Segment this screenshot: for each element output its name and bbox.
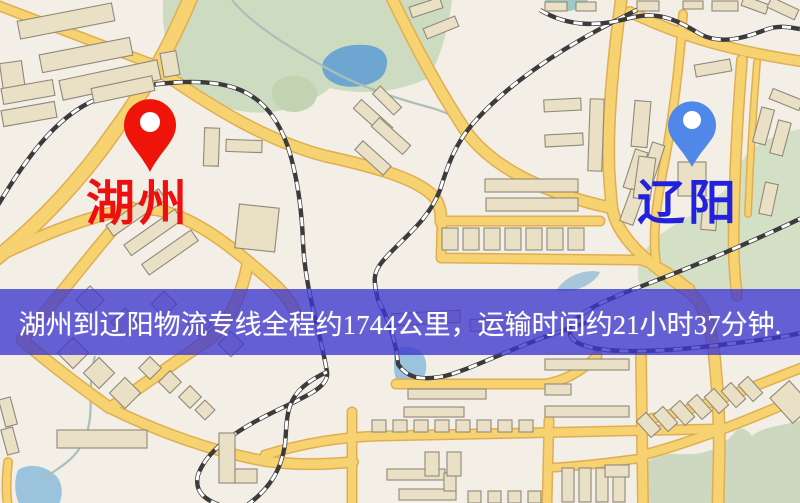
building bbox=[484, 228, 500, 250]
building bbox=[528, 491, 541, 503]
building bbox=[408, 389, 486, 399]
route-info-banner: 湖州到辽阳物流专线全程约1744公里，运输时间约21小时37分钟. bbox=[0, 289, 800, 355]
building bbox=[226, 139, 262, 152]
building bbox=[562, 468, 574, 502]
building bbox=[545, 359, 629, 370]
map-canvas[interactable]: 湖州 辽阳 bbox=[0, 0, 800, 503]
building bbox=[372, 420, 386, 432]
building bbox=[683, 1, 703, 9]
building bbox=[712, 1, 738, 11]
building bbox=[435, 420, 449, 432]
building bbox=[547, 228, 563, 250]
building bbox=[235, 204, 279, 252]
building bbox=[57, 430, 147, 448]
building bbox=[637, 1, 659, 11]
building bbox=[605, 465, 629, 477]
building bbox=[404, 407, 464, 417]
building bbox=[545, 133, 584, 147]
destination-pin-hole bbox=[683, 111, 701, 129]
building bbox=[235, 469, 257, 483]
building bbox=[544, 98, 582, 112]
building bbox=[456, 420, 470, 432]
origin-city-label: 湖州 bbox=[86, 177, 190, 231]
building bbox=[545, 384, 571, 395]
building bbox=[498, 420, 512, 432]
building bbox=[588, 99, 605, 171]
building bbox=[508, 491, 521, 503]
building bbox=[485, 179, 578, 192]
building bbox=[468, 491, 481, 503]
building bbox=[219, 433, 235, 483]
route-info-text: 湖州到辽阳物流专线全程约1744公里，运输时间约21小时37分钟. bbox=[19, 303, 782, 342]
building bbox=[160, 51, 180, 77]
building bbox=[414, 420, 428, 432]
building bbox=[631, 100, 651, 147]
origin-pin-hole bbox=[140, 112, 160, 132]
building bbox=[488, 491, 501, 503]
building bbox=[576, 2, 596, 11]
building bbox=[477, 420, 491, 432]
building bbox=[568, 228, 584, 250]
road bbox=[641, 356, 643, 503]
building bbox=[526, 228, 542, 250]
building bbox=[486, 198, 578, 211]
building bbox=[425, 452, 439, 476]
building bbox=[463, 228, 479, 250]
building bbox=[447, 452, 461, 476]
building bbox=[545, 2, 567, 11]
building bbox=[203, 128, 219, 167]
map-screenshot: 湖州 辽阳 湖州到辽阳物流专线全程约1744公里，运输时间约21小时37分钟. bbox=[0, 0, 800, 503]
building bbox=[505, 228, 521, 250]
road bbox=[7, 462, 9, 503]
building bbox=[519, 420, 533, 432]
park-area bbox=[272, 76, 317, 112]
building bbox=[579, 468, 591, 502]
building bbox=[545, 406, 629, 417]
building bbox=[442, 228, 458, 250]
road bbox=[547, 420, 549, 503]
building bbox=[393, 420, 407, 432]
destination-city-label: 辽阳 bbox=[637, 177, 739, 230]
